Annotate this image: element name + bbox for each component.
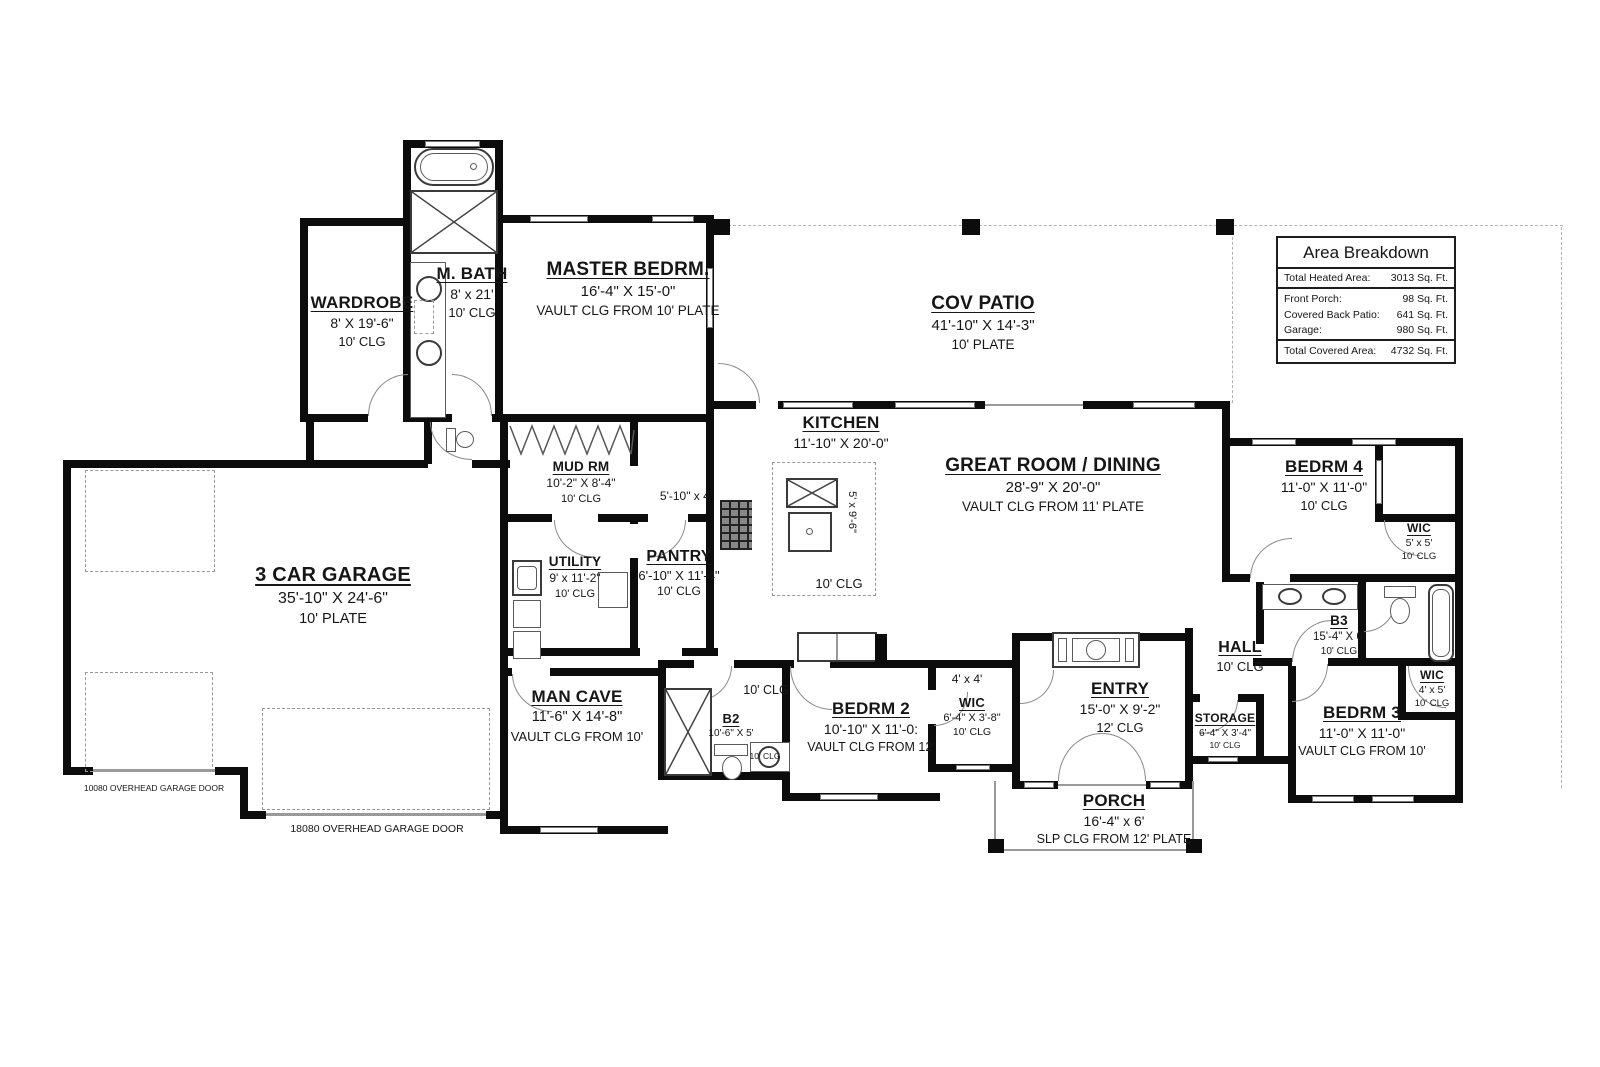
- toilet-bowl: [722, 756, 742, 780]
- shape: WIC: [1402, 521, 1437, 537]
- row-value: 641 Sq. Ft.: [1397, 309, 1448, 321]
- window: [783, 402, 853, 408]
- shape: M. BATH: [437, 263, 508, 285]
- wall: [1185, 628, 1193, 789]
- room-label-master: MASTER BEDRM. 16'-4" X 15'-0" VAULT CLG …: [536, 257, 719, 320]
- window: [1252, 439, 1296, 445]
- bathtub-inner: [420, 153, 488, 181]
- door-arc: [1102, 733, 1146, 781]
- wall: [1138, 633, 1192, 641]
- shape: MAN CAVE: [511, 686, 644, 708]
- shape: 10' CLG: [1281, 497, 1367, 514]
- table-title: Area Breakdown: [1278, 238, 1454, 269]
- shape: WIC: [943, 694, 1000, 711]
- door-arc: [1058, 733, 1102, 781]
- shape: 10' CLG: [549, 587, 601, 602]
- table-row: Total Covered Area: 4732 Sq. Ft.: [1278, 341, 1454, 362]
- room-label-wic4: WIC 5' x 5' 10' CLG: [1402, 521, 1437, 563]
- room-label-b3: B3 15'-4" X 6' 10' CLG: [1313, 612, 1365, 658]
- shape: BEDRM 4: [1281, 456, 1367, 478]
- table-row: Total Heated Area: 3013 Sq. Ft.: [1278, 269, 1454, 285]
- shape: 10' CLG: [1216, 658, 1263, 675]
- room-label-wic2: WIC 6'-4" X 3'-8" 10' CLG: [943, 694, 1000, 740]
- garage-door-line: [266, 813, 488, 816]
- shape: 6'-4" X 3'-8": [943, 711, 1000, 726]
- shape: 16'-4" X 15'-0": [536, 282, 719, 302]
- shape: STORAGE: [1195, 711, 1256, 727]
- garage-bay-outline: [85, 470, 215, 572]
- shape: 15'-4" X 6': [1313, 630, 1365, 645]
- shape: 5'-10" x 4': [660, 489, 712, 503]
- kitchen-clg-label: 10' CLG: [815, 573, 862, 594]
- wall: [300, 218, 308, 422]
- shape: 10' CLG: [638, 584, 719, 600]
- wall: [63, 460, 71, 775]
- shape: MASTER BEDRM.: [536, 257, 719, 282]
- shape: 10' CLG: [943, 726, 1000, 740]
- fireplace-slot: [1125, 638, 1134, 662]
- table-row: Front Porch: 98 Sq. Ft.: [1278, 291, 1454, 307]
- patio-post: [962, 219, 980, 235]
- window: [1133, 402, 1195, 408]
- shape: 3 CAR GARAGE: [255, 562, 411, 588]
- room-label-bedrm2: BEDRM 2 10'-10" X 11'-0: VAULT CLG FROM …: [807, 698, 934, 755]
- shape: PANTRY: [638, 546, 719, 567]
- toilet-tank: [714, 744, 748, 756]
- shape: 8' x 21': [437, 285, 508, 303]
- shape: 5' x 5': [1402, 537, 1437, 551]
- shape: [630, 524, 638, 558]
- wall: [928, 666, 936, 690]
- shape: SLP CLG FROM 12' PLATE: [1037, 831, 1192, 848]
- shape: 16'-4" x 6': [1037, 812, 1192, 830]
- room-label-mud-rm: MUD RM 10'-2" X 8'-4" 10' CLG: [546, 458, 615, 506]
- window: [895, 402, 975, 408]
- wall: [875, 634, 887, 662]
- window: [1352, 439, 1396, 445]
- window: [1372, 796, 1414, 802]
- roof-dash-line: [1561, 227, 1562, 788]
- shape: B3: [1313, 612, 1365, 630]
- shape: 41'-10" X 14'-3": [931, 316, 1035, 336]
- shower: [664, 688, 712, 776]
- room-label-bedrm4: BEDRM 4 11'-0" X 11'-0" 10' CLG: [1281, 456, 1367, 514]
- shape: 10' CLG: [311, 333, 414, 350]
- shape: VAULT CLG FROM 12': [807, 739, 934, 756]
- row-label: Total Covered Area:: [1284, 345, 1376, 357]
- shape: UTILITY: [549, 553, 601, 571]
- shape: 11'-0" X 11'-0": [1281, 478, 1367, 496]
- garage-bay-outline: [85, 672, 213, 772]
- window: [540, 827, 598, 833]
- shape: 4' x 5': [1415, 684, 1450, 698]
- shape: 28'-9" X 20'-0": [945, 478, 1161, 498]
- door-arc: [452, 374, 492, 416]
- table-row: Covered Back Patio: 641 Sq. Ft.: [1278, 306, 1454, 322]
- room-label-storage: STORAGE 6'-4" X 3'-4" 10' CLG: [1195, 711, 1256, 751]
- tub-drain: [470, 163, 477, 170]
- table-group: Front Porch: 98 Sq. Ft. Covered Back Pat…: [1278, 287, 1454, 342]
- shape: 6'-4" X 3'-4": [1195, 727, 1256, 740]
- shape: COV PATIO: [931, 291, 1035, 316]
- vent: [956, 765, 990, 770]
- shape: 11'-10" X 20'-0": [793, 434, 888, 452]
- room-label-hall: HALL 10' CLG: [1216, 637, 1263, 675]
- shape: [640, 648, 682, 656]
- room-label-b2: B2 10'-6" X 5': [708, 710, 753, 740]
- shape: 10'-10" X 11'-0:: [807, 720, 934, 738]
- room-label-great-room: GREAT ROOM / DINING 28'-9" X 20'-0" VAUL…: [945, 453, 1161, 516]
- shower: [410, 190, 498, 254]
- shape: 35'-10" X 24'-6": [255, 588, 411, 609]
- dryer: [513, 631, 541, 659]
- room-label-man-cave: MAN CAVE 11'-6" X 14'-8" VAULT CLG FROM …: [511, 686, 644, 745]
- wall: [1256, 694, 1264, 764]
- shape: 15'-0" X 9'-2": [1080, 700, 1161, 718]
- door-arc: [368, 374, 408, 416]
- wall: [706, 408, 714, 656]
- shape: BEDRM 2: [807, 698, 934, 720]
- shape: 10' CLG: [1195, 740, 1256, 751]
- row-value: 980 Sq. Ft.: [1397, 324, 1448, 336]
- window: [1376, 460, 1382, 504]
- cabinet-outline: [414, 300, 434, 334]
- patio-post: [1216, 219, 1234, 235]
- shape: 10' CLG: [1415, 698, 1450, 711]
- sink: [1278, 588, 1302, 605]
- shape: 8' X 19'-6": [311, 314, 414, 332]
- shape: 9' x 11'-2": [549, 571, 601, 587]
- wall: [1222, 401, 1230, 582]
- shape: 11'-0" X 11'-0": [1298, 724, 1425, 742]
- row-label: Front Porch:: [1284, 293, 1342, 305]
- fireplace-slot: [1058, 638, 1067, 662]
- door-arc: [1020, 670, 1054, 704]
- shape: 10' CLG: [750, 751, 781, 761]
- cooktop: [786, 478, 838, 508]
- shape: 6'-10" X 11'-4": [638, 567, 719, 584]
- shape: WARDROBE: [311, 292, 414, 314]
- cabinet: [720, 500, 752, 550]
- patio-post: [712, 219, 730, 235]
- island-sink-drain: [806, 528, 813, 535]
- entry-door-line: [1058, 784, 1146, 786]
- shape: B2: [708, 710, 753, 727]
- wall: [500, 414, 508, 834]
- room-label-cov-patio: COV PATIO 41'-10" X 14'-3" 10' PLATE: [931, 291, 1035, 354]
- sink: [1322, 588, 1346, 605]
- shape: VAULT CLG FROM 10': [511, 728, 644, 745]
- shape: 10' CLG: [743, 683, 788, 697]
- shape: 10080 OVERHEAD GARAGE DOOR: [84, 783, 224, 793]
- room-label-wic3: WIC 4' x 5' 10' CLG: [1415, 668, 1450, 710]
- fireplace-circle: [1086, 640, 1106, 660]
- shape: GREAT ROOM / DINING: [945, 453, 1161, 478]
- room-label-garage: 3 CAR GARAGE 35'-10" X 24'-6" 10' PLATE: [255, 562, 411, 629]
- roof-dash-line: [1232, 227, 1233, 403]
- row-label: Total Heated Area:: [1284, 272, 1370, 284]
- row-label: Garage:: [1284, 324, 1322, 336]
- row-value: 98 Sq. Ft.: [1402, 293, 1448, 305]
- room-label-utility: UTILITY 9' x 11'-2" 10' CLG: [549, 553, 601, 601]
- utility-sink-basin: [517, 566, 537, 590]
- shape: MUD RM: [546, 458, 615, 476]
- porch-post: [988, 839, 1004, 853]
- shape: 10' CLG: [437, 304, 508, 321]
- garage-door-label-10080: 10080 OVERHEAD GARAGE DOOR: [84, 776, 224, 797]
- washer: [513, 600, 541, 628]
- row-value: 3013 Sq. Ft.: [1391, 272, 1448, 284]
- shape: VAULT CLG FROM 10': [1298, 743, 1425, 760]
- center-hall-clg-label: 10' CLG: [743, 679, 788, 700]
- table-row: Garage: 980 Sq. Ft.: [1278, 322, 1454, 338]
- thin-line: [836, 634, 838, 660]
- shape: 10'-2" X 8'-4": [546, 476, 615, 492]
- floor-plan: Area Breakdown Total Heated Area: 3013 S…: [0, 0, 1600, 1067]
- water-heater: [598, 572, 628, 608]
- room-label-porch: PORCH 16'-4" x 6' SLP CLG FROM 12' PLATE: [1037, 790, 1192, 847]
- door-arc: [1292, 664, 1328, 702]
- closet-4x4-label: 4' x 4': [952, 668, 983, 689]
- room-label-wardrobe: WARDROBE 8' X 19'-6" 10' CLG: [311, 292, 414, 350]
- row-value: 4732 Sq. Ft.: [1391, 345, 1448, 357]
- roof-dash-line: [713, 225, 1563, 226]
- window: [530, 216, 588, 222]
- shape: ENTRY: [1080, 678, 1161, 700]
- shape: 4' x 4': [952, 672, 983, 686]
- toilet-bowl: [1390, 598, 1410, 624]
- room-label-bedrm3: BEDRM 3 11'-0" X 11'-0" VAULT CLG FROM 1…: [1298, 702, 1425, 759]
- garage-door-label-18080: 18080 OVERHEAD GARAGE DOOR: [290, 817, 463, 838]
- window: [1312, 796, 1354, 802]
- vent: [1208, 757, 1238, 762]
- shape: 10' PLATE: [255, 610, 411, 629]
- shape: VAULT CLG FROM 11' PLATE: [945, 498, 1161, 516]
- shape: PORCH: [1037, 790, 1192, 812]
- wall: [1455, 438, 1463, 803]
- window: [652, 216, 694, 222]
- room-label-entry: ENTRY 15'-0" X 9'-2" 12' CLG: [1080, 678, 1161, 736]
- sink: [416, 340, 442, 366]
- shape: HALL: [1216, 637, 1263, 658]
- shape: 10' CLG: [815, 576, 862, 591]
- shape: VAULT CLG FROM 10' PLATE: [536, 302, 719, 320]
- shape: 10' PLATE: [931, 336, 1035, 354]
- window: [820, 794, 878, 800]
- wall: [306, 420, 314, 464]
- b2-clg-label: 10' CLG: [750, 744, 781, 765]
- garage-bay-outline: [262, 708, 490, 810]
- toilet-bowl: [456, 431, 474, 448]
- shape: WIC: [1415, 668, 1450, 684]
- wall: [300, 218, 410, 226]
- door-arc: [1250, 538, 1292, 578]
- wall: [240, 811, 266, 819]
- shape: 10' CLG: [1402, 551, 1437, 564]
- shape: KITCHEN: [793, 412, 888, 434]
- toilet-tank: [1384, 586, 1416, 598]
- area-breakdown-table: Area Breakdown Total Heated Area: 3013 S…: [1276, 236, 1456, 364]
- row-label: Covered Back Patio:: [1284, 309, 1380, 321]
- room-label-pantry: PANTRY 6'-10" X 11'-4" 10' CLG: [638, 546, 719, 600]
- mud-bench: [508, 420, 636, 460]
- shape: BEDRM 3: [1298, 702, 1425, 724]
- island-dim-label: 5' x 9'-6": [846, 491, 858, 533]
- shape: [510, 426, 634, 454]
- window: [1024, 782, 1054, 788]
- shape: 10'-6" X 5': [708, 727, 753, 740]
- room-label-kitchen: KITCHEN 11'-10" X 20'-0": [793, 412, 888, 453]
- hall-niche-dim-label: 5'-10" x 4': [660, 485, 712, 506]
- shape: 10' CLG: [546, 492, 615, 507]
- room-label-m-bath: M. BATH 8' x 21' 10' CLG: [437, 263, 508, 321]
- bathtub-inner: [1432, 589, 1450, 657]
- shape: 12' CLG: [1080, 719, 1161, 736]
- window: [1150, 782, 1180, 788]
- shape: 10' CLG: [1313, 645, 1365, 658]
- door-arc: [718, 363, 760, 403]
- wall: [63, 460, 428, 468]
- thin-line: [994, 849, 1194, 851]
- shape: 18080 OVERHEAD GARAGE DOOR: [290, 823, 463, 835]
- slider-door-line: [985, 404, 1083, 406]
- shape: 11'-6" X 14'-8": [511, 708, 644, 727]
- toilet-tank: [446, 428, 456, 452]
- window: [425, 141, 480, 147]
